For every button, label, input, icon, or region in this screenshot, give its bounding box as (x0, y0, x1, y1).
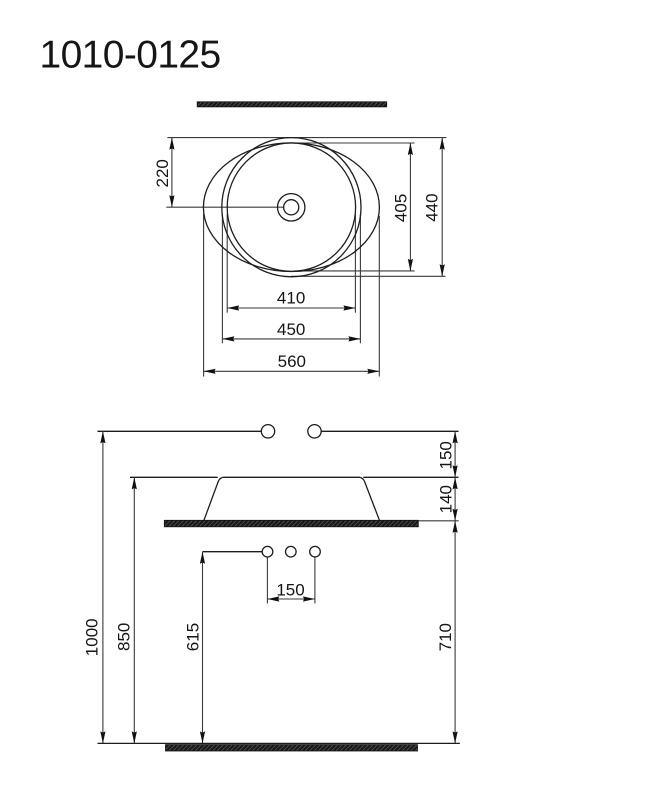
svg-text:150: 150 (276, 580, 304, 599)
svg-text:560: 560 (278, 352, 306, 371)
svg-text:220: 220 (153, 159, 172, 187)
svg-text:450: 450 (277, 320, 305, 339)
svg-text:150: 150 (436, 441, 455, 469)
svg-text:710: 710 (436, 623, 455, 651)
svg-text:850: 850 (115, 623, 134, 651)
svg-text:1010-0125: 1010-0125 (40, 33, 221, 76)
svg-text:615: 615 (183, 623, 202, 651)
svg-text:440: 440 (422, 193, 441, 221)
svg-text:410: 410 (277, 289, 305, 308)
svg-text:405: 405 (392, 194, 411, 222)
svg-text:1000: 1000 (83, 618, 102, 656)
svg-text:140: 140 (436, 485, 455, 513)
